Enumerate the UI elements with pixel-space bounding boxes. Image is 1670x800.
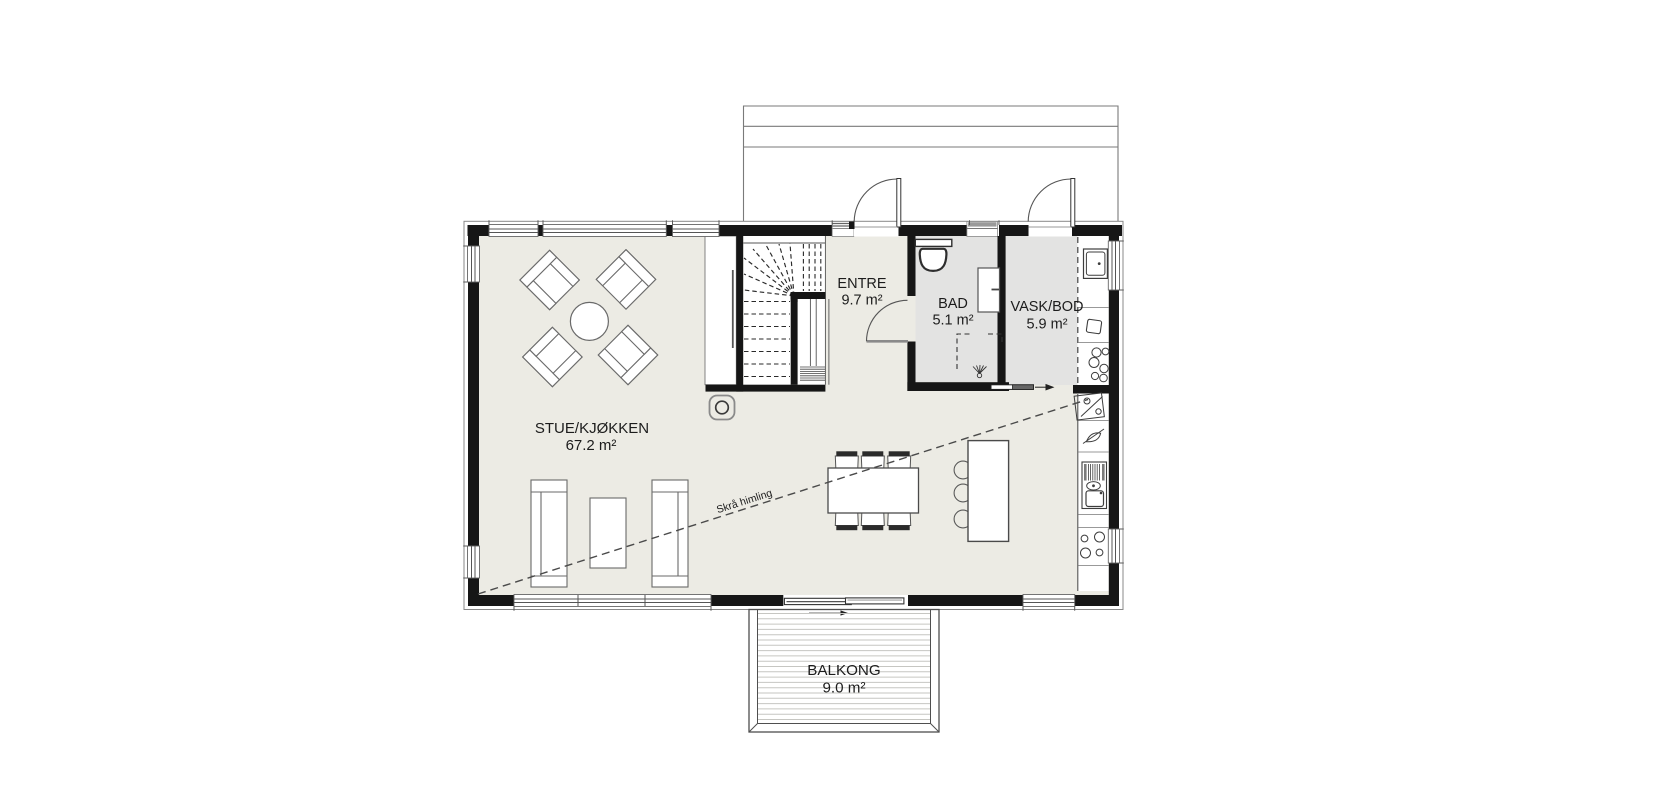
svg-text:5.1 m²: 5.1 m² bbox=[932, 313, 973, 329]
svg-text:VASK/BOD: VASK/BOD bbox=[1010, 299, 1083, 315]
svg-text:5.9 m²: 5.9 m² bbox=[1026, 317, 1067, 333]
svg-text:9.7 m²: 9.7 m² bbox=[841, 293, 882, 309]
svg-text:67.2 m²: 67.2 m² bbox=[566, 437, 617, 454]
svg-text:9.0 m²: 9.0 m² bbox=[822, 680, 865, 697]
svg-text:BAD: BAD bbox=[938, 296, 968, 312]
svg-text:BALKONG: BALKONG bbox=[807, 662, 880, 679]
svg-text:ENTRE: ENTRE bbox=[837, 276, 886, 292]
svg-text:STUE/KJØKKEN: STUE/KJØKKEN bbox=[535, 420, 649, 437]
